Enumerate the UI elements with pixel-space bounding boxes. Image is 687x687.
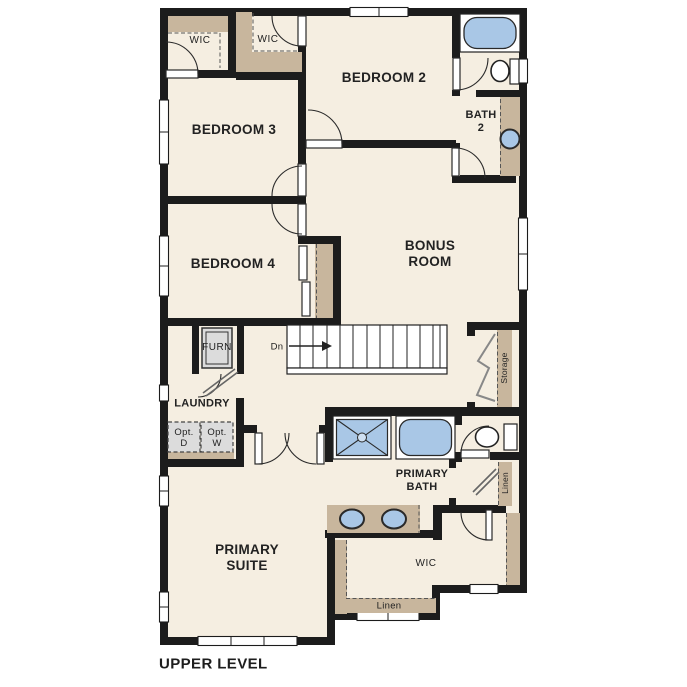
bath2-sink-icon — [501, 130, 520, 149]
label-bedroom-2: BEDROOM 2 — [342, 70, 426, 86]
label-bath-2: BATH 2 — [466, 109, 497, 135]
sink-icon — [340, 510, 364, 529]
label-primary-bath: PRIMARY BATH — [396, 468, 448, 494]
label-furnace: FURN — [202, 342, 232, 354]
label-bedroom-4: BEDROOM 4 — [191, 256, 275, 272]
vanity-sinks — [327, 505, 420, 533]
floor-plan: WIC WIC BEDROOM 2 BATH 2 BEDROOM 3 BEDRO… — [0, 0, 687, 687]
label-stairs-dn: Dn — [271, 341, 284, 352]
sink-icon — [382, 510, 406, 529]
label-bedroom-3: BEDROOM 3 — [192, 122, 276, 138]
label-linen-closet: Linen — [377, 600, 402, 611]
label-laundry: LAUNDRY — [174, 398, 229, 411]
label-wic-top-mid: WIC — [258, 34, 279, 46]
primary-bathtub-icon — [396, 416, 455, 459]
label-linen-hall: Linen — [500, 472, 510, 494]
bathtub2-icon — [460, 14, 520, 52]
label-primary-suite: PRIMARY SUITE — [215, 542, 279, 574]
label-opt-dryer: Opt. D — [174, 427, 193, 449]
floor-plan-drawing — [0, 0, 687, 687]
label-wic-top-left: WIC — [190, 35, 211, 47]
plan-title: UPPER LEVEL — [159, 656, 268, 673]
label-storage: Storage — [499, 352, 509, 383]
stairs — [287, 325, 447, 374]
label-opt-washer: Opt. W — [207, 427, 226, 449]
toilet2-icon — [491, 59, 519, 84]
label-wic-primary: WIC — [416, 558, 437, 570]
shower-icon — [333, 416, 391, 459]
label-bonus-room: BONUS ROOM — [405, 238, 455, 270]
